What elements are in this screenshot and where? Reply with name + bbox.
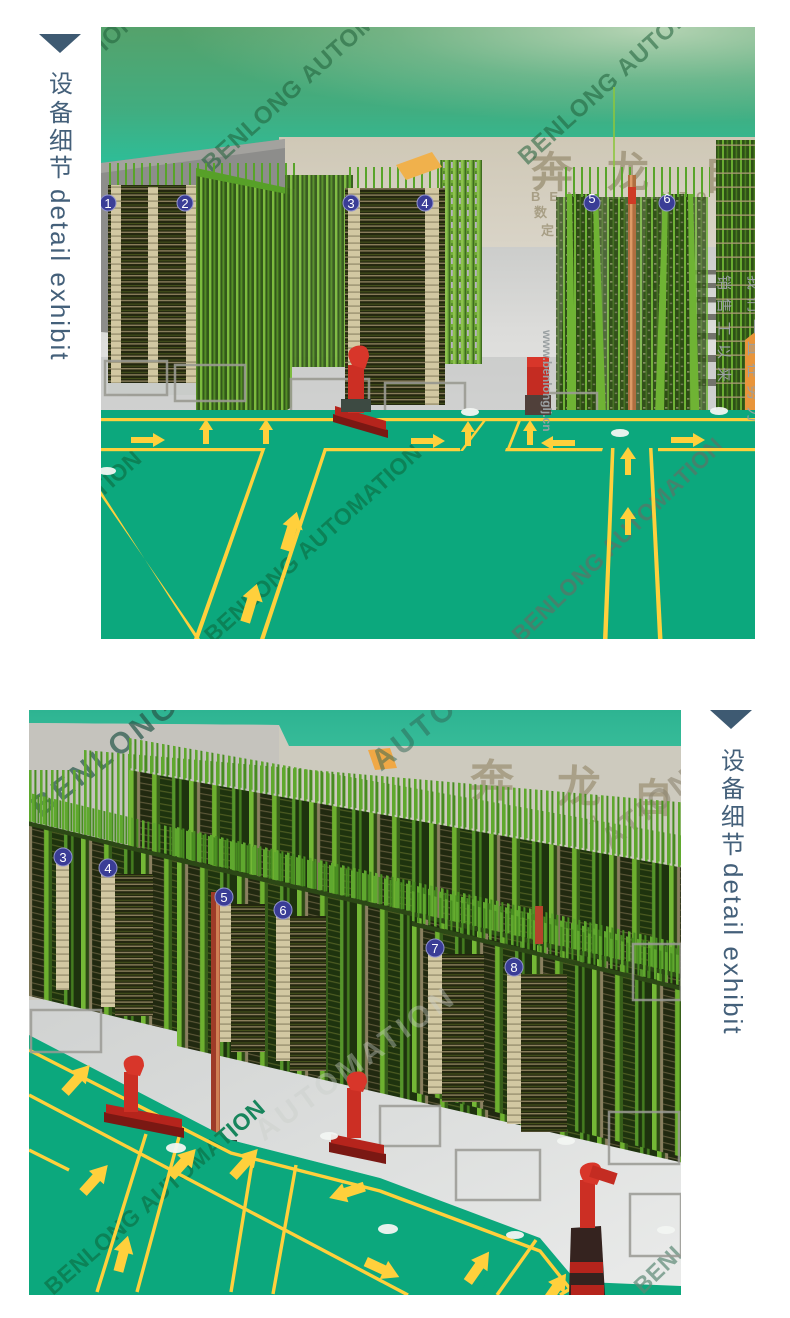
svg-text:5: 5 <box>220 890 227 905</box>
svg-text:www.benlonglj.cn: www.benlonglj.cn <box>540 329 554 432</box>
svg-text:1: 1 <box>104 196 111 211</box>
svg-text:8: 8 <box>510 960 517 975</box>
svg-text:定: 定 <box>540 223 554 238</box>
svg-text:4: 4 <box>104 861 111 876</box>
svg-text:4: 4 <box>421 196 428 211</box>
svg-text:6: 6 <box>663 191 670 206</box>
svg-text:2: 2 <box>181 196 188 211</box>
svg-text:数: 数 <box>534 205 548 220</box>
svg-text:5: 5 <box>588 191 595 206</box>
svg-text:3: 3 <box>59 850 66 865</box>
svg-text:我们一直在努力: 我们一直在努力 <box>745 275 755 429</box>
svg-text:3: 3 <box>347 196 354 211</box>
svg-text:销售工以来: 销售工以来 <box>715 275 732 390</box>
svg-text:6: 6 <box>279 903 286 918</box>
svg-text:7: 7 <box>431 941 438 956</box>
